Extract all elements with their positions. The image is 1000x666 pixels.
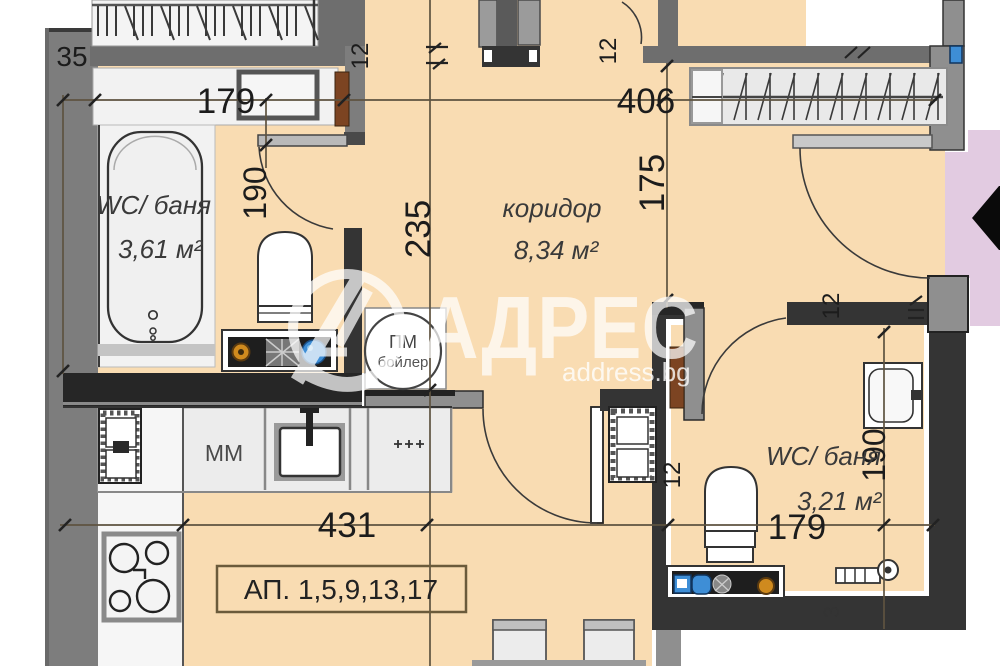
svg-text:3,21 м²: 3,21 м²	[797, 486, 883, 516]
svg-text:3: 3	[819, 606, 844, 618]
svg-text:431: 431	[318, 506, 376, 545]
svg-text:address.bg: address.bg	[562, 357, 691, 387]
svg-text:WC/ баня: WC/ баня	[766, 441, 881, 471]
svg-text:35: 35	[56, 41, 87, 72]
svg-text:235: 235	[399, 200, 438, 258]
svg-text:3,61 м²: 3,61 м²	[118, 234, 204, 264]
svg-text:АП. 1,5,9,13,17: АП. 1,5,9,13,17	[244, 574, 438, 605]
svg-text:12: 12	[595, 38, 622, 65]
svg-text:12: 12	[659, 462, 686, 489]
svg-text:ММ: ММ	[205, 440, 243, 466]
svg-text:12: 12	[347, 43, 374, 70]
svg-text:12: 12	[818, 293, 845, 320]
svg-text:WC/ баня: WC/ баня	[96, 190, 211, 220]
svg-text:8,34 м²: 8,34 м²	[514, 235, 600, 265]
svg-text:коридор: коридор	[503, 193, 602, 223]
svg-text:406: 406	[617, 82, 675, 121]
svg-text:179: 179	[197, 82, 255, 121]
svg-text:175: 175	[633, 154, 672, 212]
svg-text:190: 190	[237, 166, 273, 219]
